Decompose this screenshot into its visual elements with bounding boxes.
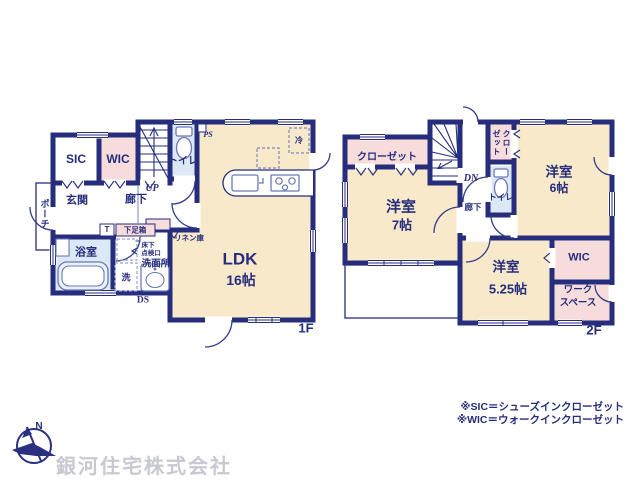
floor-label-2f: 2F [586,324,601,337]
workspace-label-2: スペース [560,298,597,308]
room-label-7jo: 洋室 [386,200,416,215]
room-6jo [514,122,612,238]
ps-label: PS [203,131,212,139]
room-label-wic-1f: WIC [106,153,129,165]
room-525jo [460,238,552,323]
room-label-porch: ポーチ [40,199,49,229]
room-label-toilet-2f: トイレ [488,193,514,202]
room-label-ldk: LDK [223,251,258,268]
room-size-525jo: 5.25帖 [489,283,527,296]
room-label-wic-2f: WIC [568,253,589,264]
kitchen-sink [232,175,258,191]
ds-label: DS [137,296,149,306]
stairs-up-label: UP [145,184,158,194]
compass-icon [12,427,56,463]
bath-counter [56,239,69,256]
linen-closet-label: リネン庫 [174,234,204,242]
stairs-dn-label: DN [464,174,478,184]
kitchen-counter [223,170,313,196]
refrigerator-label: 冷 [295,137,303,145]
closet-v-label-1: クロー [502,130,510,157]
floorplan-page: SIC WIC トイレ PS UP 玄関 廊下 ポーチ T 下足箱 浴室 床下 … [0,0,640,480]
room-label-525jo: 洋室 [493,260,520,274]
toilet-fixture-1f [176,127,192,159]
room-label-hallway-2f: 廊下 [464,203,481,212]
room-label-bath: 浴室 [75,248,97,259]
legend-note-wic: ※WIC＝ウォークインクローゼット [457,414,624,427]
legend-notes: ※SIC＝シューズインクローゼット ※WIC＝ウォークインクローゼット [457,401,624,427]
shoe-cabinet-label: 下足箱 [124,226,147,234]
room-label-6jo: 洋室 [546,165,573,179]
compass-n-label: N [35,422,42,432]
room-label-toilet-1f: トイレ [168,157,198,167]
room-label-closet-2f: クローゼット [357,153,417,163]
stairs-1f [139,125,169,180]
underfloor-hatch-label-2: 点検口 [141,251,161,258]
underfloor-hatch-label-1: 床下 [142,243,155,250]
stairs-2f [432,124,458,176]
room-size-ldk: 16帖 [226,273,256,287]
workspace-label-1: ワーク [564,285,593,295]
room-label-washroom: 洗面所 [142,259,171,269]
washer-label: 洗 [121,274,130,283]
room-size-7jo: 7帖 [392,219,412,232]
closet-v-label-2: ゼット [492,130,500,157]
room-label-hallway-1f: 廊下 [125,195,147,206]
company-name: 銀河住宅株式会社 [56,450,232,479]
room-size-6jo: 6帖 [550,182,569,194]
balcony [345,265,460,318]
legend-note-sic: ※SIC＝シューズインクローゼット [457,401,624,414]
floor-label-1f: 1F [298,322,313,335]
shoe-t-label: T [105,226,110,234]
room-label-genkan: 玄関 [66,196,88,207]
room-label-sic: SIC [66,153,86,165]
